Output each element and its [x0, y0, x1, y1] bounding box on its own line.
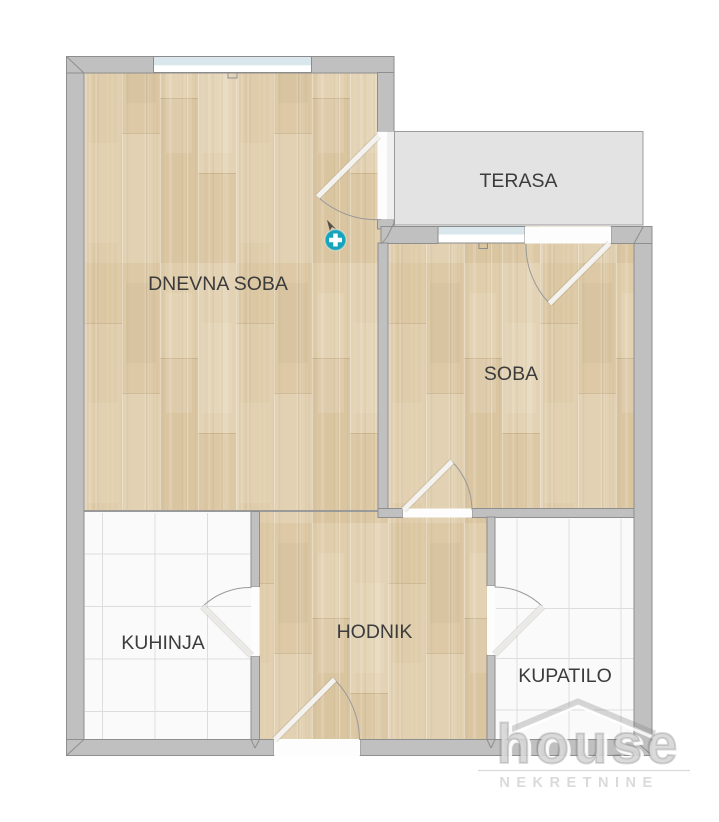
svg-text:house: house — [497, 712, 682, 775]
svg-text:SOBA: SOBA — [484, 363, 538, 385]
svg-text:HODNIK: HODNIK — [337, 621, 413, 643]
svg-text:DNEVNA SOBA: DNEVNA SOBA — [148, 273, 288, 295]
svg-text:KUPATILO: KUPATILO — [518, 665, 612, 687]
svg-text:TERASA: TERASA — [479, 170, 557, 192]
svg-text:NEKRETNINE: NEKRETNINE — [499, 775, 658, 791]
svg-text:KUHINJA: KUHINJA — [121, 632, 204, 654]
